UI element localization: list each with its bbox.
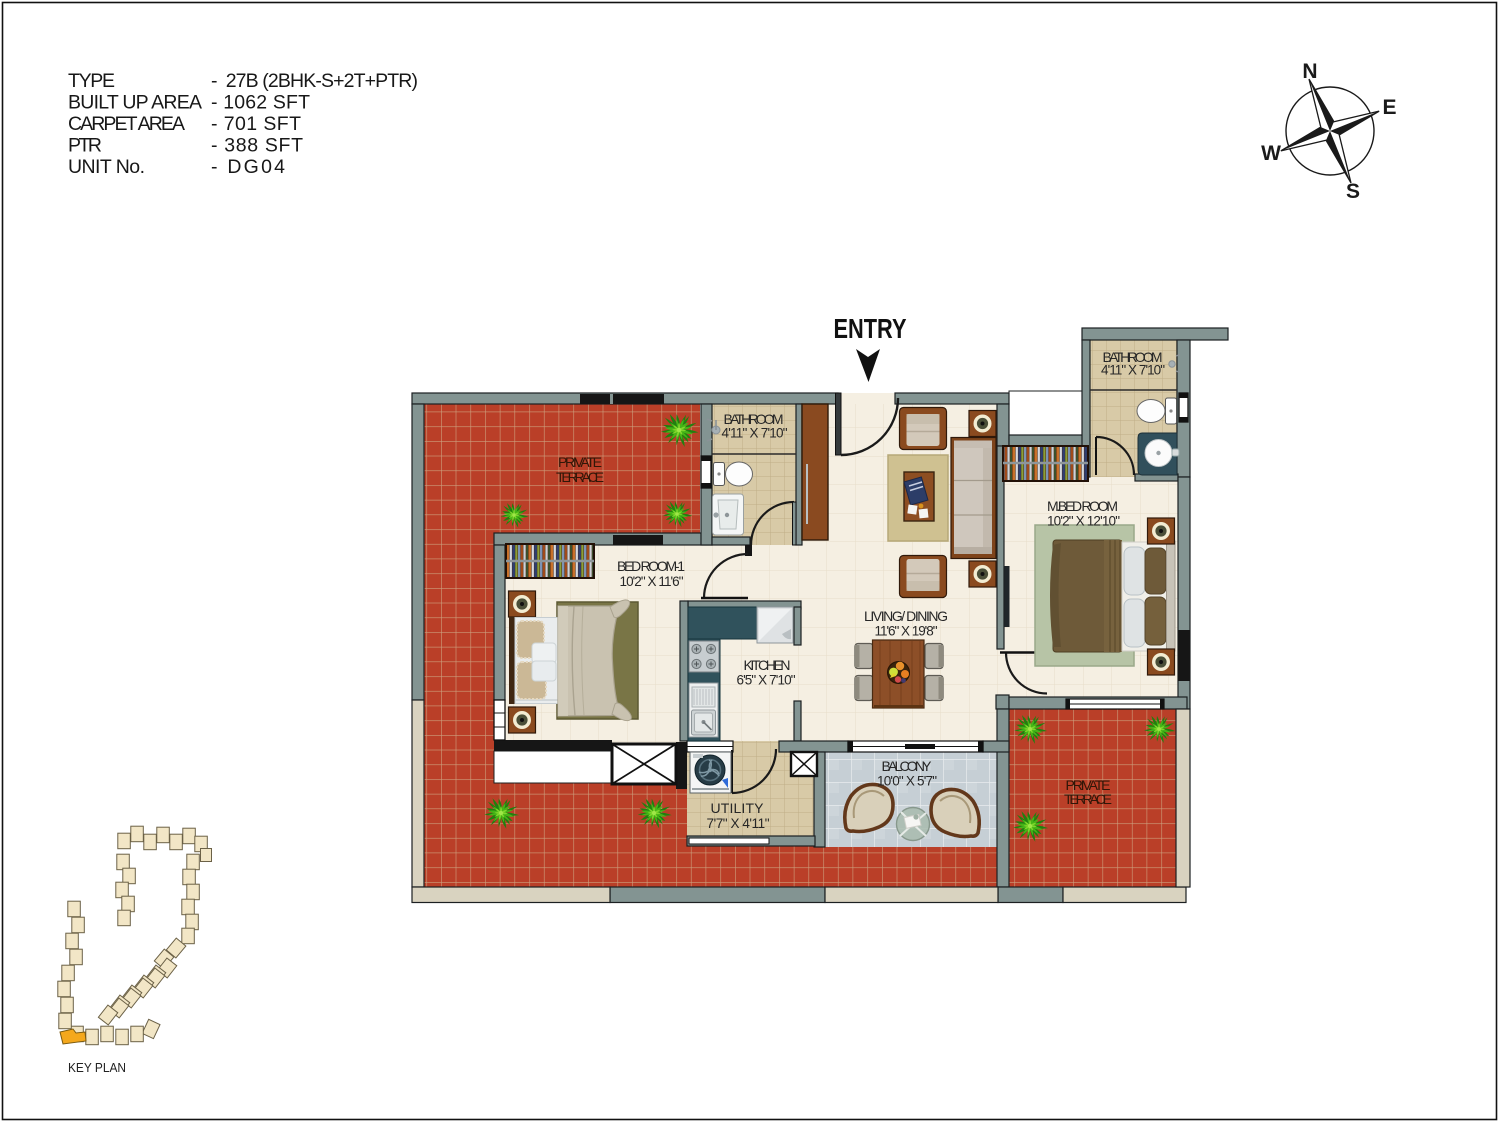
svg-text:M.BED ROOM: M.BED ROOM (1047, 498, 1118, 514)
svg-text:10'2" X 12'10": 10'2" X 12'10" (1047, 514, 1120, 529)
svg-text:ENTRY: ENTRY (834, 313, 907, 344)
svg-text:BED ROOM-1: BED ROOM-1 (617, 558, 685, 574)
svg-text:- 388 SFT: - 388 SFT (211, 135, 303, 157)
svg-text:PTR: PTR (68, 135, 102, 157)
svg-text:UNIT No.: UNIT No. (68, 156, 145, 178)
svg-text:TYPE: TYPE (68, 70, 115, 92)
svg-text:CARPET AREA: CARPET AREA (68, 113, 185, 135)
svg-text:7'7" X 4'11": 7'7" X 4'11" (707, 816, 770, 831)
svg-text:BUILT UP AREA: BUILT UP AREA (68, 92, 202, 114)
svg-text:W: W (1261, 142, 1281, 165)
svg-text:4'11" X 7'10": 4'11" X 7'10" (722, 426, 788, 441)
svg-text:10'2" X 11'6": 10'2" X 11'6" (620, 574, 684, 589)
svg-text:LIVING/ DINING: LIVING/ DINING (864, 608, 948, 624)
svg-text:11'6" X 19'8": 11'6" X 19'8" (875, 624, 938, 639)
svg-text:N: N (1302, 60, 1317, 83)
svg-text:S: S (1346, 180, 1360, 203)
svg-text:10'0" X 5'7": 10'0" X 5'7" (877, 774, 937, 789)
svg-text:KEY PLAN: KEY PLAN (68, 1060, 126, 1075)
svg-text:- 701 SFT: - 701 SFT (211, 113, 301, 135)
svg-text:KITCHEN: KITCHEN (744, 657, 791, 673)
svg-text:- 1062 SFT: - 1062 SFT (211, 92, 310, 114)
svg-text:TERRACE: TERRACE (556, 469, 604, 485)
svg-text:BALCONY: BALCONY (882, 758, 933, 774)
svg-text:TERRACE: TERRACE (1064, 791, 1112, 807)
svg-text:UTILITY: UTILITY (711, 800, 765, 816)
svg-text:PRIVATE: PRIVATE (558, 454, 602, 470)
svg-text:6'5" X 7'10": 6'5" X 7'10" (737, 673, 796, 688)
svg-text:4'11" X 7'10": 4'11" X 7'10" (1101, 363, 1165, 378)
svg-text:E: E (1382, 96, 1396, 119)
svg-text:- DG04: - DG04 (211, 156, 285, 178)
svg-text:- 27B (2BHK-S+2T+PTR): - 27B (2BHK-S+2T+PTR) (211, 70, 418, 92)
